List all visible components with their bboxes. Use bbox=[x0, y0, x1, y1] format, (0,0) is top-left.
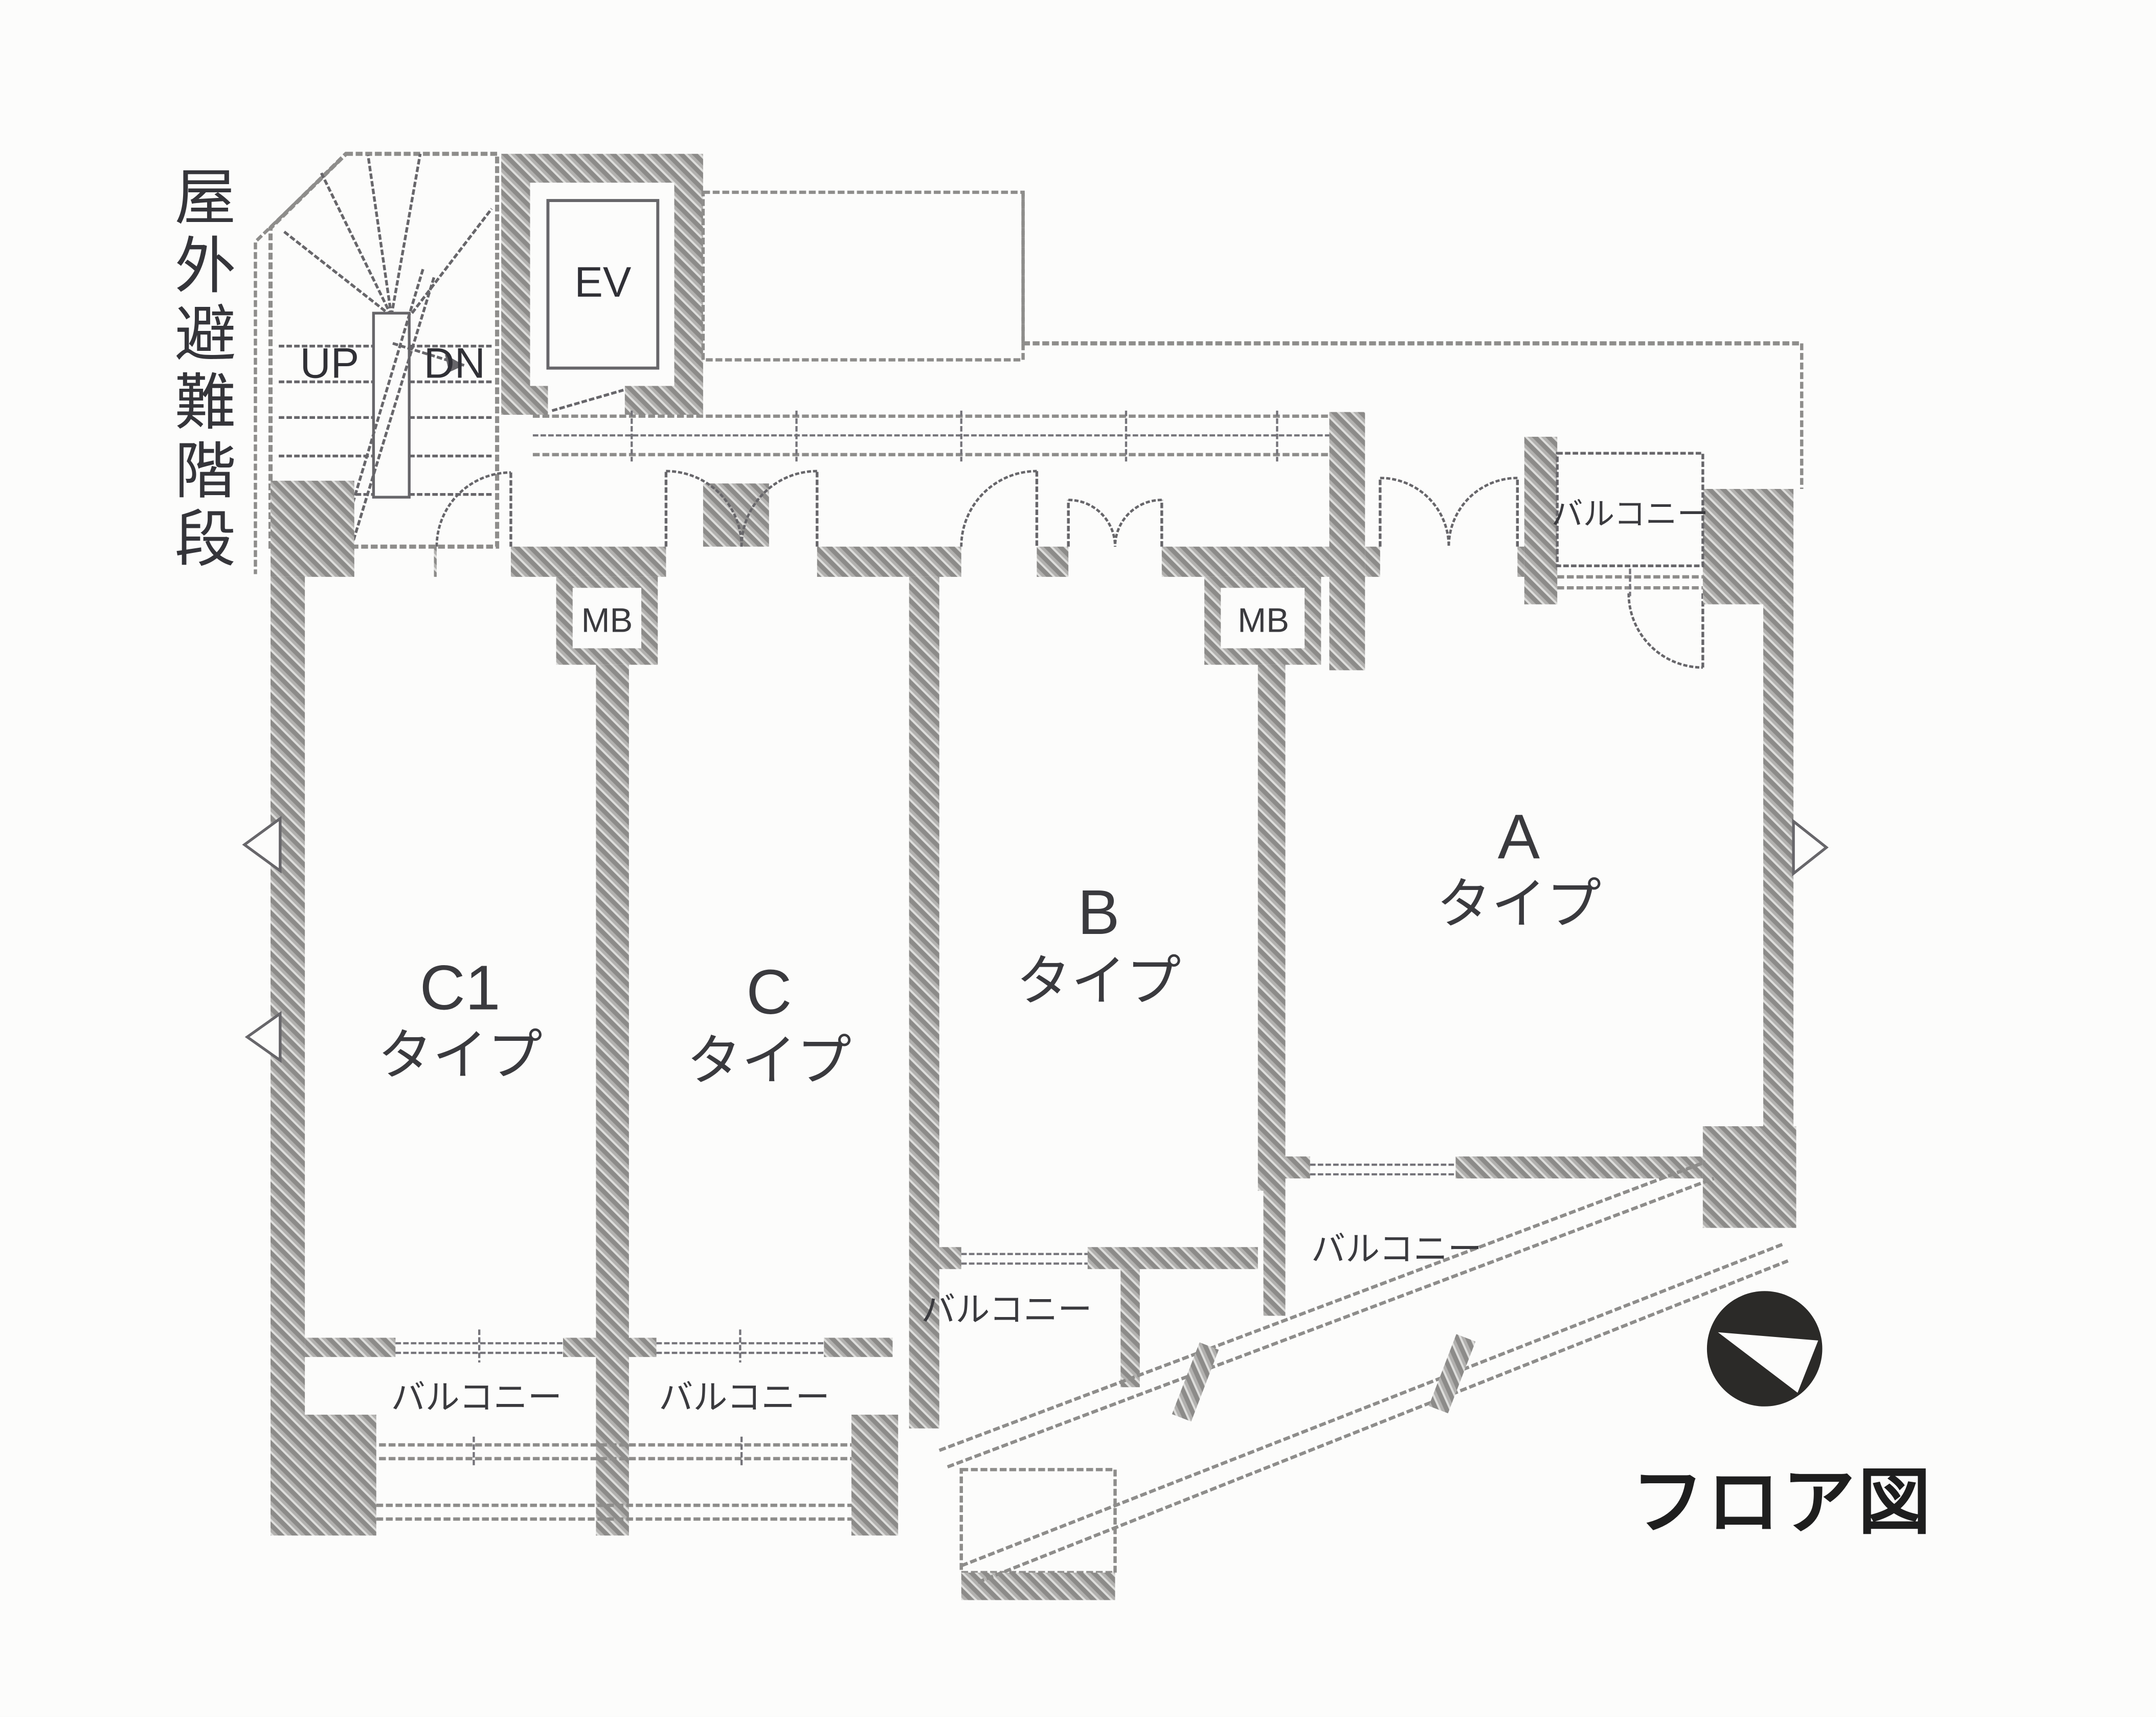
wall-b-a bbox=[1258, 665, 1286, 1191]
corridor-end-pier bbox=[1329, 412, 1365, 671]
mailbox-right: MB bbox=[1204, 577, 1321, 665]
unit-b-type-label: タイプ bbox=[1016, 950, 1181, 1012]
emergency-stair-label: 屋外避難階段 bbox=[155, 165, 244, 575]
dn-label: DN bbox=[424, 339, 485, 387]
unit-c1-type-label: タイプ bbox=[377, 1024, 542, 1086]
stair-landing bbox=[373, 313, 409, 497]
balcony-label: バルコニー bbox=[391, 1378, 562, 1417]
railing-end-wall bbox=[703, 483, 769, 547]
west-exterior-wall bbox=[271, 577, 305, 1429]
up-label: UP bbox=[300, 339, 360, 387]
balcony-corner-block bbox=[851, 1415, 898, 1535]
lower-roof-band bbox=[961, 1573, 1115, 1600]
unit-c-label: C bbox=[746, 957, 792, 1028]
floor-plan-drawing: UP DN EV bbox=[0, 0, 2156, 1717]
floor-plan-caption: フロア図 bbox=[1631, 1462, 1934, 1543]
mailbox-left: MB bbox=[556, 577, 658, 665]
balcony-label: バルコニー bbox=[659, 1378, 829, 1417]
unit-a-type-label: タイプ bbox=[1436, 874, 1601, 935]
unit-a-label: A bbox=[1498, 801, 1540, 872]
east-exterior-wall bbox=[1763, 605, 1793, 1132]
elevator: EV bbox=[501, 154, 703, 415]
mailbox-left-label: MB bbox=[581, 601, 633, 639]
roof-void bbox=[703, 192, 1023, 360]
elevator-label: EV bbox=[574, 258, 632, 306]
balcony-b-east-wall bbox=[1120, 1269, 1140, 1387]
balcony-label: バルコニー bbox=[1552, 497, 1709, 532]
north-arrow bbox=[1707, 1291, 1823, 1407]
a-southeast-corner bbox=[1703, 1126, 1796, 1228]
unit-c1-label: C1 bbox=[420, 953, 501, 1023]
floor-plan: 屋外避難階段 bbox=[0, 0, 2156, 1717]
balcony-label: バルコニー bbox=[1311, 1230, 1482, 1268]
unit-b-label: B bbox=[1077, 877, 1119, 948]
wall-c1-c bbox=[596, 665, 628, 1536]
balcony-corner-block bbox=[271, 1415, 376, 1535]
balcony-a-west-wall bbox=[1264, 1156, 1286, 1316]
mailbox-right-label: MB bbox=[1238, 601, 1289, 639]
balcony-label: バルコニー bbox=[921, 1290, 1092, 1329]
unit-c-type-label: タイプ bbox=[687, 1030, 851, 1091]
a-northeast-corner bbox=[1703, 489, 1793, 605]
